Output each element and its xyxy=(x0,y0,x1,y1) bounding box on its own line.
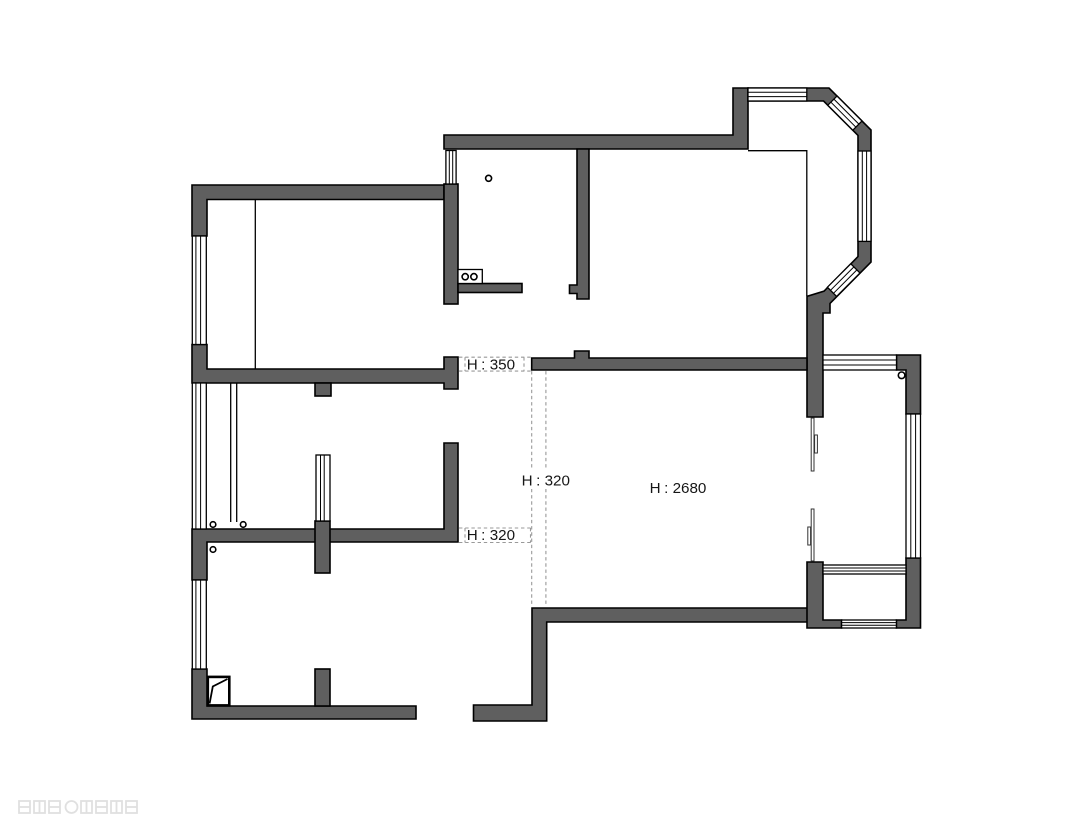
svg-text:H:350: H:350 xyxy=(467,356,515,373)
svg-text:H:2680: H:2680 xyxy=(650,480,707,497)
svg-text:H:320: H:320 xyxy=(467,527,515,544)
svg-text:H:320: H:320 xyxy=(522,472,570,489)
